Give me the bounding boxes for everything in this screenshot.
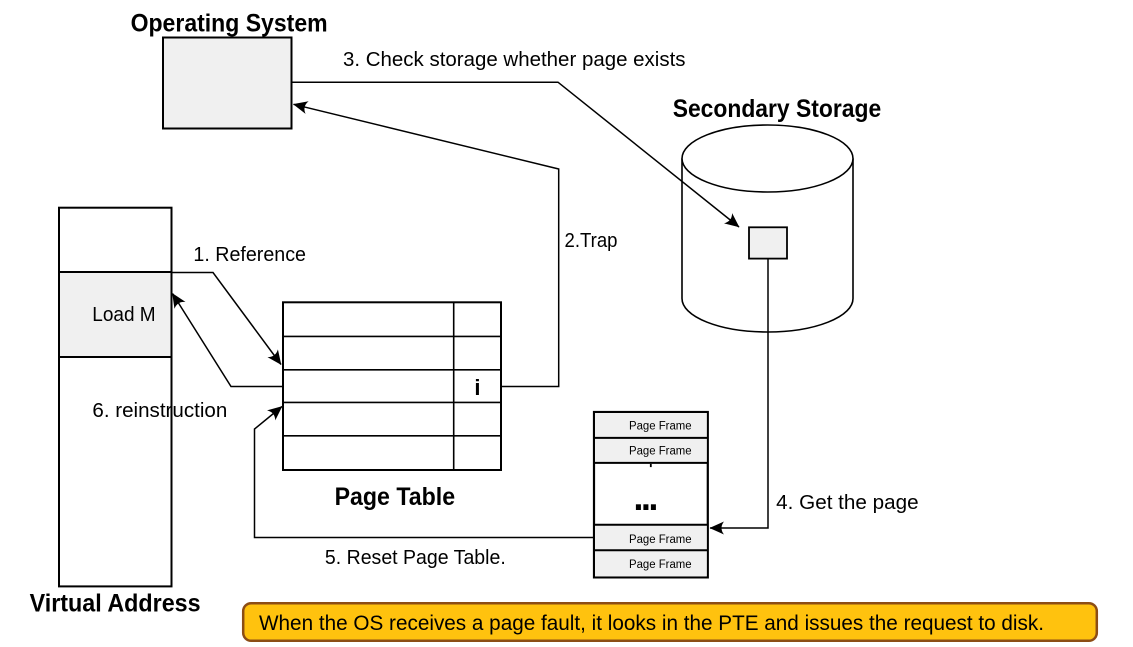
svg-text:i: i <box>474 375 480 400</box>
svg-text:4. Get the page: 4. Get the page <box>776 491 918 514</box>
svg-text:Page Frame: Page Frame <box>629 559 692 571</box>
svg-text:When the OS receives a page fa: When the OS receives a page fault, it lo… <box>259 611 1044 635</box>
svg-text:Secondary Storage: Secondary Storage <box>673 95 882 123</box>
svg-text:Page Frame: Page Frame <box>629 446 692 458</box>
svg-text:3. Check storage whether page: 3. Check storage whether page exists <box>343 48 686 71</box>
svg-text:Virtual Address: Virtual Address <box>30 590 201 618</box>
svg-text:Operating System: Operating System <box>131 9 328 37</box>
svg-text:Page Frame: Page Frame <box>629 421 692 433</box>
svg-text:1. Reference: 1. Reference <box>193 243 306 266</box>
svg-text:5. Reset Page Table.: 5. Reset Page Table. <box>325 546 506 569</box>
svg-text:6. reinstruction: 6. reinstruction <box>92 399 227 422</box>
svg-text:2.Trap: 2.Trap <box>565 229 618 252</box>
svg-text:Load M: Load M <box>92 303 155 326</box>
svg-text:Page Table: Page Table <box>335 483 456 511</box>
svg-text:Page Frame: Page Frame <box>629 534 692 546</box>
